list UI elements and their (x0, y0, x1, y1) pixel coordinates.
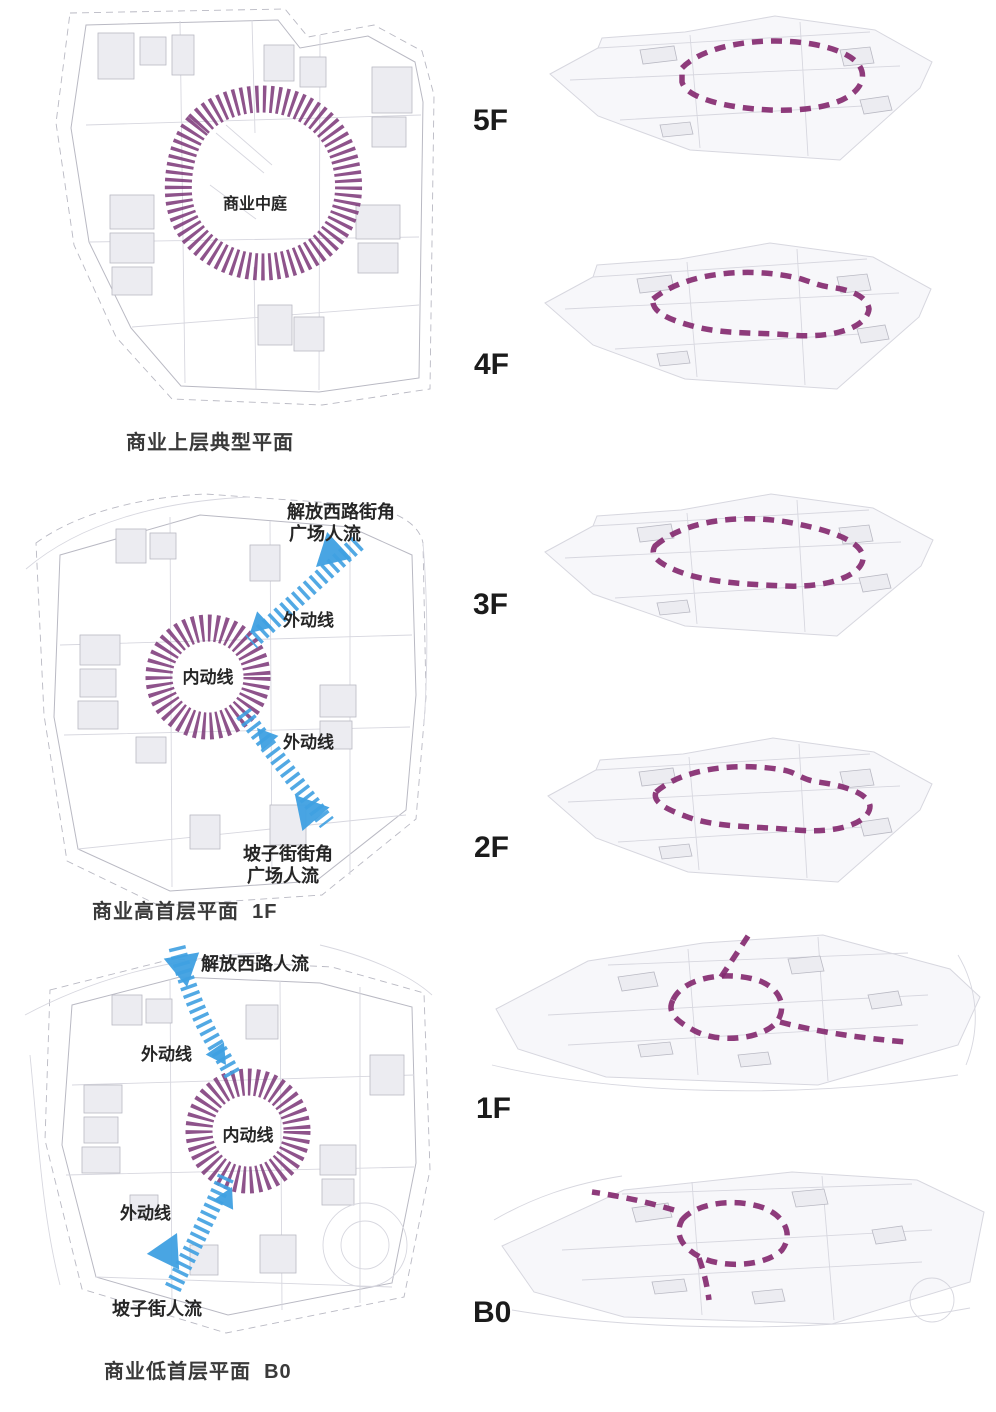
outer-path-bottom-label: 外动线 (283, 733, 334, 753)
inflow-top-label-line2: 广场人流 (289, 524, 361, 545)
cad-linework (550, 16, 932, 160)
floor-label-1f: 1F (476, 1092, 511, 1127)
cad-linework (494, 1172, 984, 1327)
inflow-top-label: 解放西路人流 (201, 954, 309, 975)
inflow-top-label-line1: 解放西路街角 (287, 502, 395, 523)
cad-linework (545, 243, 931, 389)
upper-plan-drawing (20, 5, 440, 465)
plate-2f-drawing (538, 730, 945, 890)
atrium-circulation-ring (178, 99, 348, 267)
inflow-bottom-label-line2: 广场人流 (247, 866, 319, 887)
floor-label-4f: 4F (474, 348, 509, 383)
floor-label-3f: 3F (473, 588, 508, 623)
outer-path-top-label: 外动线 (141, 1045, 192, 1065)
upper-plan-caption: 商业上层典型平面 (126, 432, 294, 455)
outer-path-bottom-label: 外动线 (120, 1204, 171, 1224)
circulation-diagram-page: 商业中庭 商业上层典型平面 (0, 0, 996, 1412)
plate-5f-drawing (540, 10, 940, 170)
inner-path-label: 内动线 (181, 668, 235, 688)
floor-label-2f: 2F (474, 831, 509, 866)
plate-4f-drawing (535, 235, 940, 400)
inflow-bottom-label: 坡子街人流 (112, 1299, 202, 1320)
cad-linework (548, 738, 932, 882)
cad-linework (26, 494, 427, 906)
plate-1f-drawing (488, 925, 988, 1093)
b0-plan-drawing (20, 935, 440, 1367)
level1-plan-drawing (20, 485, 440, 935)
level1-plan-caption: 商业高首层平面 1F (92, 901, 277, 924)
outer-path-top-label: 外动线 (283, 611, 334, 631)
atrium-label: 商业中庭 (200, 196, 310, 214)
cad-linework (545, 494, 933, 636)
floor-label-5f: 5F (473, 104, 508, 139)
b0-plan-caption: 商业低首层平面 B0 (104, 1361, 292, 1384)
inner-path-label: 内动线 (221, 1126, 275, 1146)
plate-3f-drawing (535, 486, 945, 644)
plate-b0-drawing (492, 1150, 990, 1335)
inflow-bottom-label-line1: 坡子街街角 (243, 844, 333, 865)
floor-label-b0: B0 (473, 1296, 511, 1331)
